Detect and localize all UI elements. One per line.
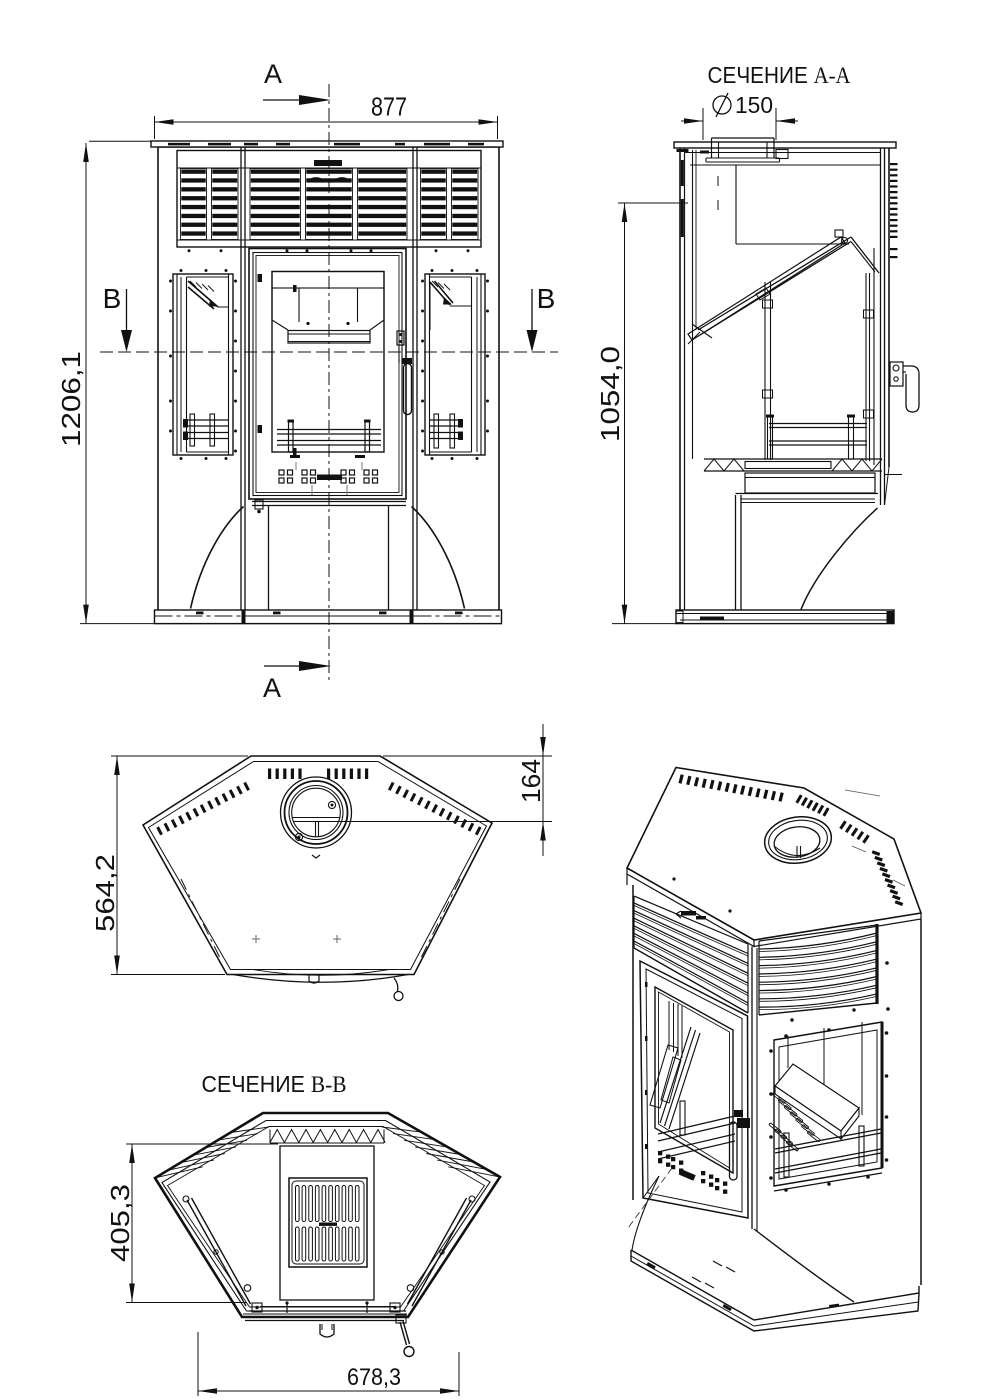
svg-text:A: A	[263, 673, 281, 703]
svg-text:A: A	[264, 59, 282, 89]
svg-text:1206,1: 1206,1	[56, 351, 86, 447]
svg-text:B: B	[103, 283, 122, 314]
svg-text:СЕЧЕНИЕ В-В: СЕЧЕНИЕ В-В	[202, 1071, 347, 1098]
svg-text:150: 150	[735, 92, 773, 118]
svg-text:164: 164	[516, 759, 546, 803]
svg-text:564,2: 564,2	[90, 854, 120, 932]
svg-text:B: B	[537, 283, 556, 314]
svg-text:1054,0: 1054,0	[595, 346, 625, 442]
svg-text:877: 877	[371, 94, 407, 122]
svg-text:405,3: 405,3	[105, 1184, 135, 1262]
svg-text:678,3: 678,3	[347, 1364, 401, 1391]
svg-text:СЕЧЕНИЕ А-А: СЕЧЕНИЕ А-А	[708, 62, 851, 89]
